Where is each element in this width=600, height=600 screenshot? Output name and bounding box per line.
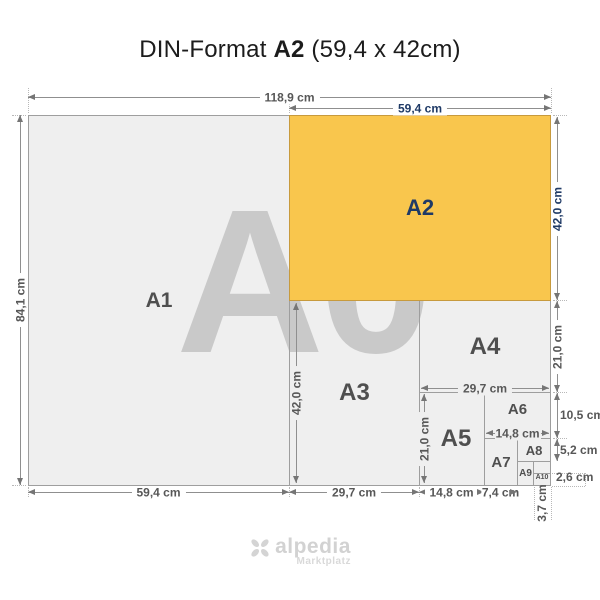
- extension-line: [553, 115, 567, 116]
- logo-text: alpedia Marktplatz: [275, 536, 351, 567]
- dim-a1-width: 59,4 cm: [28, 492, 289, 493]
- dim-a3-width: 29,7 cm: [289, 492, 419, 493]
- dim-a10-height-label: 2,6 cm: [556, 471, 593, 484]
- dim-a4-width: 29,7 cm: [421, 388, 549, 389]
- dim-a2-width: 59,4 cm: [289, 108, 551, 109]
- paper-a10-label: A10: [534, 472, 550, 483]
- extension-line: [552, 486, 585, 487]
- paper-a10: A10: [533, 461, 551, 474]
- dim-total-width-label: 118,9 cm: [259, 92, 319, 105]
- dim-a1-width-label: 59,4 cm: [131, 487, 185, 500]
- dim-a5-height: 21,0 cm: [424, 394, 425, 483]
- flower-icon: [249, 537, 271, 559]
- dim-a8-height-label: 5,2 cm: [560, 444, 597, 457]
- dim-total-height-label: 84,1 cm: [15, 273, 28, 327]
- dim-a5-width-label: 14,8 cm: [424, 487, 478, 500]
- alpedia-logo: alpedia Marktplatz: [0, 536, 600, 567]
- dim-a6-height-line: [557, 393, 558, 438]
- dim-a10-width-label: 3,7 cm: [536, 484, 548, 522]
- title-prefix: DIN-Format: [139, 36, 266, 63]
- paper-a1-label: A1: [29, 116, 289, 485]
- dim-a7-width: 7,4 cm: [484, 492, 517, 493]
- dim-a3-height: 42,0 cm: [296, 303, 297, 483]
- page-title: DIN-Format A2 (59,4 x 42cm): [0, 36, 600, 64]
- logo-name: alpedia: [275, 536, 351, 558]
- dim-a4-height: 21,0 cm: [557, 301, 558, 392]
- dim-a5-width: 14,8 cm: [419, 492, 484, 493]
- dim-a2-height: 42,0 cm: [557, 117, 558, 300]
- title-suffix: (59,4 x 42cm): [311, 36, 460, 63]
- dim-total-height: 84,1 cm: [20, 115, 21, 485]
- extension-line: [12, 485, 26, 486]
- dim-a8-height-line: [557, 439, 558, 461]
- extension-line: [551, 88, 552, 113]
- dim-total-width: 118,9 cm: [28, 97, 551, 98]
- paper-a2-label: A2: [290, 116, 550, 300]
- dim-a3-height-label: 42,0 cm: [291, 366, 304, 420]
- dim-a4-width-label: 29,7 cm: [458, 383, 512, 396]
- extension-line: [551, 487, 552, 520]
- dim-a3-width-label: 29,7 cm: [327, 487, 381, 500]
- paper-a4: A4: [419, 300, 551, 393]
- paper-a8-label: A8: [518, 439, 550, 461]
- din-format-diagram: DIN-Format A2 (59,4 x 42cm) A1 A3 A4 A5 …: [0, 0, 600, 600]
- dim-a5-height-label: 21,0 cm: [419, 411, 432, 465]
- paper-a3-label: A3: [290, 301, 419, 485]
- dim-a4-height-label: 21,0 cm: [552, 319, 565, 373]
- paper-a8: A8: [517, 438, 551, 462]
- title-format: A2: [273, 36, 304, 63]
- paper-a1: A1: [28, 115, 290, 486]
- dim-a6-width-label: 14,8 cm: [494, 428, 540, 441]
- extension-line: [28, 88, 29, 113]
- dim-a2-width-label: 59,4 cm: [393, 103, 447, 116]
- dim-a7-width-label: 7,4 cm: [481, 487, 520, 500]
- dim-a6-width: 14,8 cm: [486, 433, 549, 434]
- paper-a7: A7: [484, 438, 518, 486]
- paper-a4-label: A4: [420, 301, 550, 392]
- dim-a6-height-label: 10,5 cm: [560, 409, 600, 422]
- paper-a9-label: A9: [518, 462, 533, 485]
- dim-a2-height-label: 42,0 cm: [552, 181, 565, 235]
- paper-a7-label: A7: [485, 439, 517, 485]
- paper-a9: A9: [517, 461, 534, 486]
- paper-a3: A3: [289, 300, 420, 486]
- logo-tagline: Marktplatz: [296, 556, 350, 567]
- paper-a2-highlighted: A2: [289, 115, 551, 301]
